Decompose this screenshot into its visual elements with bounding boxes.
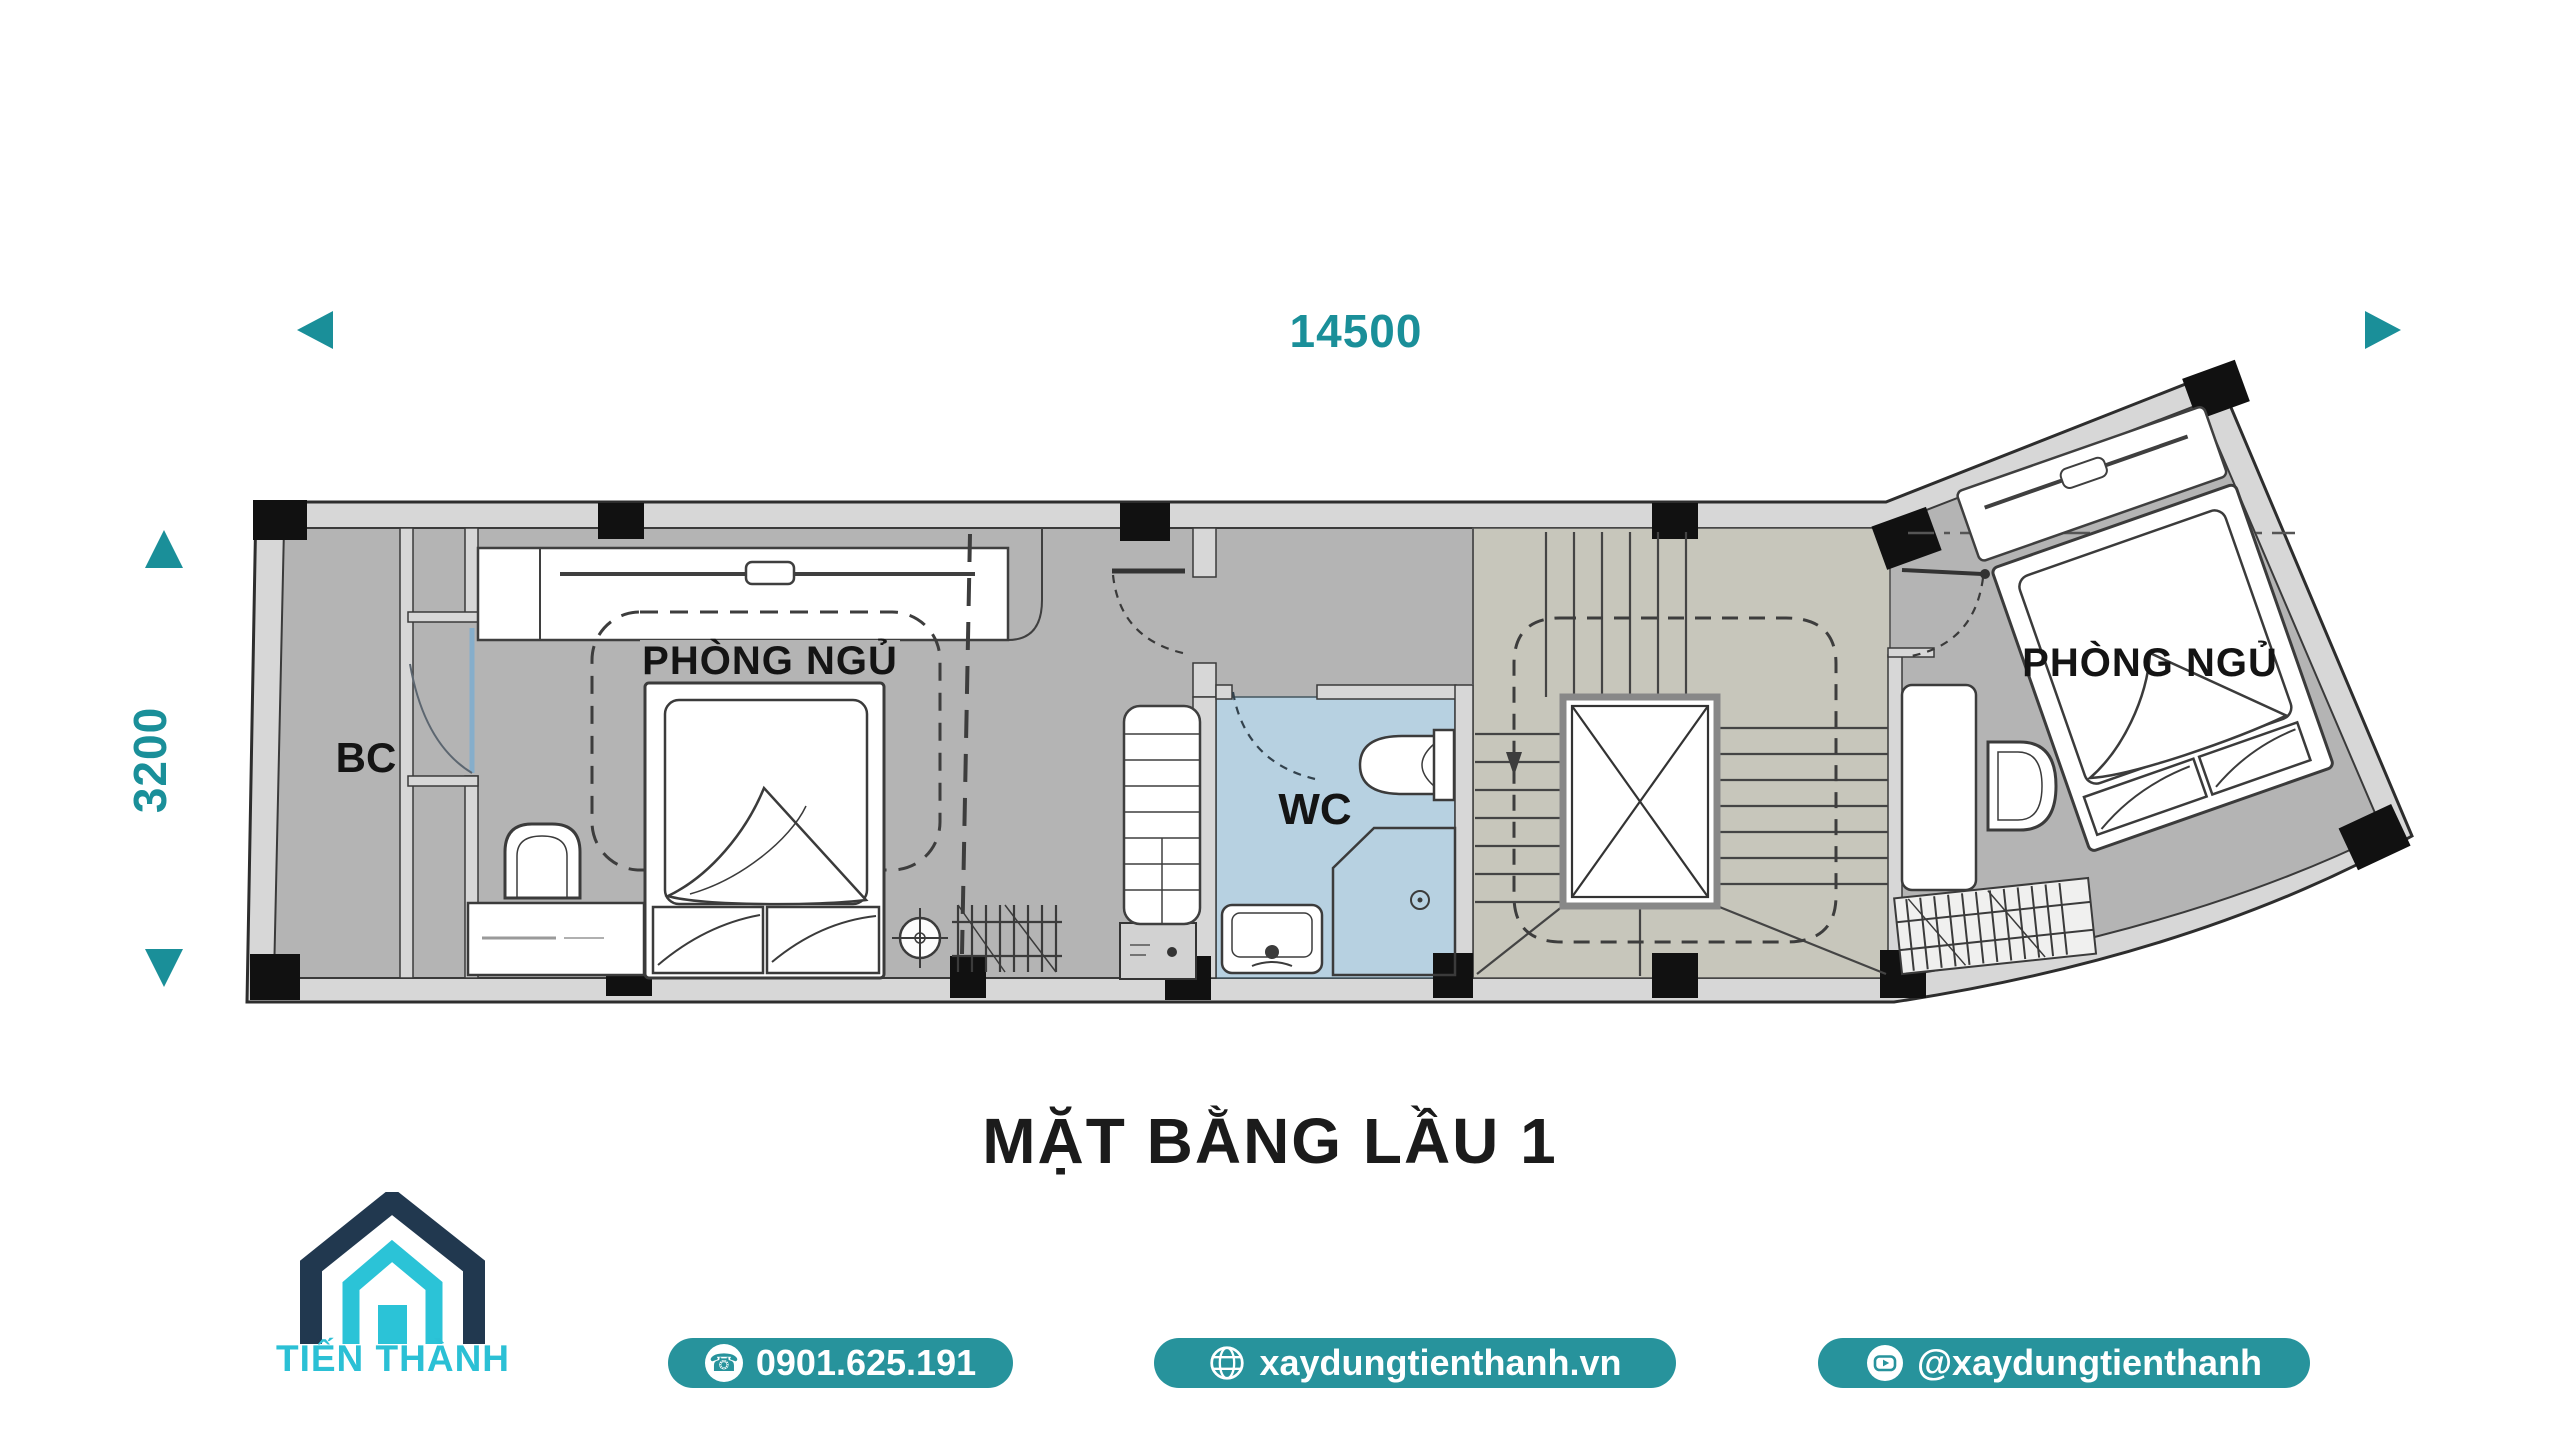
dim-arrow-right [2365, 311, 2401, 349]
dim-label-vertical: 3200 [124, 707, 176, 813]
dim-arrow-left [297, 311, 333, 349]
phone-number: 0901.625.191 [756, 1342, 976, 1384]
room-label-balcony: BC [336, 734, 397, 781]
bed-left [645, 683, 884, 978]
website-url: xaydungtienthanh.vn [1259, 1342, 1621, 1384]
toilet [1360, 730, 1454, 800]
poster-canvas: BC PHÒNG NGỦ WC PHÒNG NGỦ 14500 3200 MẶT… [0, 0, 2560, 1439]
globe-icon [1208, 1344, 1246, 1382]
website-pill[interactable]: xaydungtienthanh.vn [1154, 1338, 1676, 1388]
room-label-bedroom-right: PHÒNG NGỦ [2022, 639, 2278, 685]
house-logo-icon [290, 1192, 495, 1344]
youtube-icon [1866, 1344, 1904, 1382]
phone-pill[interactable]: ☎ 0901.625.191 [668, 1338, 1013, 1388]
desk-chair [1988, 742, 2056, 830]
dim-arrow-up [145, 530, 183, 568]
room-label-bedroom-left: PHÒNG NGỦ [642, 637, 898, 683]
phone-icon: ☎ [705, 1344, 743, 1382]
dim-label-horizontal: 14500 [1290, 305, 1423, 357]
utility-box [1120, 923, 1196, 979]
sink [1222, 905, 1322, 973]
brand-logo [290, 1192, 495, 1349]
armchair [505, 824, 580, 898]
dim-arrow-down [145, 949, 183, 987]
hall-cabinet [1124, 706, 1200, 924]
dresser [468, 903, 644, 975]
social-handle: @xaydungtienthanh [1917, 1342, 2262, 1384]
page-title: MẶT BẰNG LẦU 1 [982, 1104, 1558, 1178]
social-pill[interactable]: @xaydungtienthanh [1818, 1338, 2310, 1388]
desk [1902, 685, 1976, 890]
room-label-wc: WC [1278, 785, 1351, 834]
brand-name: TIẾN THÀNH [276, 1338, 510, 1380]
